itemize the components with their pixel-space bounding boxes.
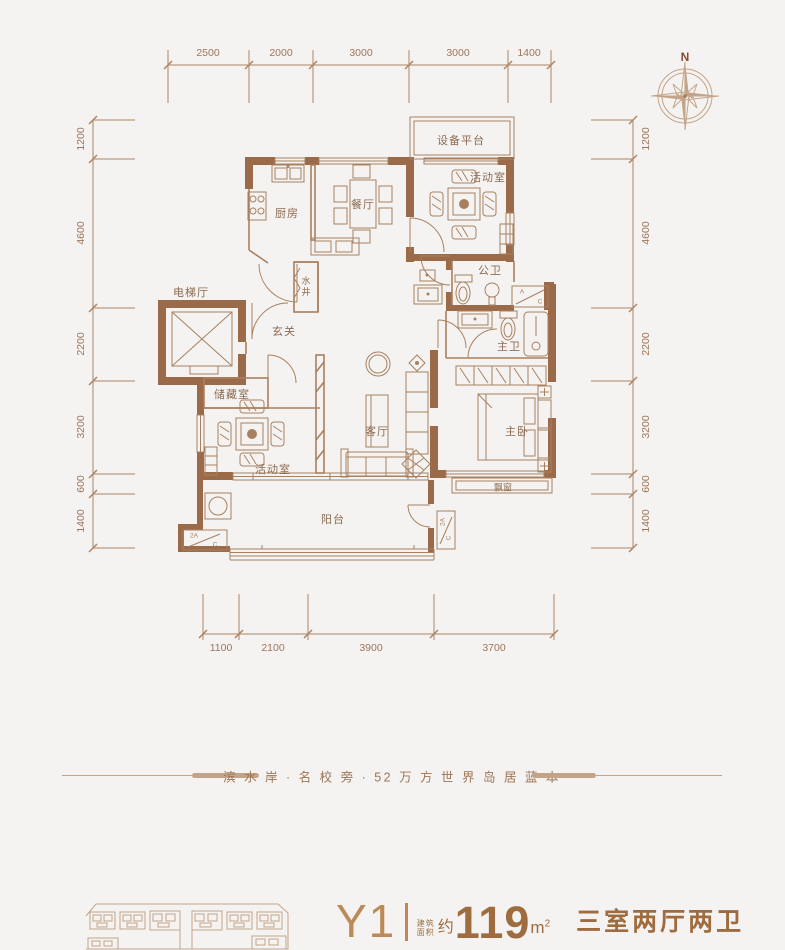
ac-label-balcony-2a: 2A	[440, 518, 447, 526]
area-label-line2: 面积	[417, 929, 435, 938]
dim-bottom-1: 1100	[210, 642, 233, 654]
dimension-lines-right	[591, 116, 637, 552]
compass-north-label: N	[681, 50, 690, 64]
dim-right-5: 600	[640, 475, 652, 493]
room-label-entry: 玄关	[272, 323, 296, 339]
tagline-line-left	[62, 775, 192, 776]
dim-bottom-3: 3900	[359, 642, 382, 654]
unit-model: Y1	[336, 899, 396, 943]
ac-label-right-c: C	[538, 299, 543, 306]
key-plan	[86, 904, 288, 949]
room-label-public-bath: 公卫	[478, 262, 502, 278]
dim-top-3: 3000	[349, 47, 372, 59]
area-unit-sup: 2	[545, 918, 551, 929]
furniture	[172, 165, 551, 519]
dim-left-1: 1200	[75, 127, 87, 150]
ac-label-bottomleft-c: C	[213, 542, 218, 549]
area-unit: m2	[530, 918, 550, 938]
room-label-kitchen: 厨房	[275, 205, 299, 221]
unit-title-block: Y1 建筑 面积 约 119 m2 三室两厅两卫	[336, 897, 744, 943]
dim-left-6: 1400	[75, 509, 87, 532]
room-label-dining: 餐厅	[351, 196, 375, 212]
dimension-lines-bottom	[199, 594, 558, 640]
area-value: 119	[455, 903, 531, 943]
floorplan-drawing	[0, 0, 785, 950]
tagline-bar-right	[532, 773, 596, 778]
unit-layout: 三室两厅两卫	[576, 902, 744, 938]
room-label-elevator-hall: 电梯厅	[173, 284, 209, 300]
dim-left-4: 3200	[75, 415, 87, 438]
ac-label-balcony-c: C	[446, 536, 453, 541]
room-label-activity-top: 活动室	[470, 169, 506, 185]
dim-top-5: 1400	[517, 47, 540, 59]
room-label-living: 客厅	[365, 423, 389, 439]
dim-top-4: 3000	[446, 47, 469, 59]
area-label-stack: 建筑 面积	[417, 920, 435, 937]
floorplan-page: 2500 2000 3000 3000 1400 1100 2100 3900 …	[0, 0, 785, 950]
room-label-equipment-platform: 设备平台	[437, 132, 485, 148]
room-label-bay-window: 飘窗	[494, 481, 512, 494]
tagline-line-right	[596, 775, 722, 776]
dim-right-2: 4600	[640, 221, 652, 244]
dimension-lines-left	[89, 116, 135, 552]
dim-bottom-2: 2100	[261, 642, 284, 654]
room-label-balcony: 阳台	[321, 511, 345, 527]
dim-right-1: 1200	[640, 127, 652, 150]
dim-left-2: 4600	[75, 221, 87, 244]
area-unit-base: m	[530, 918, 544, 937]
area-approx: 约	[438, 913, 454, 937]
dim-top-2: 2000	[269, 47, 292, 59]
dim-bottom-4: 3700	[482, 642, 505, 654]
dim-top-1: 2500	[196, 47, 219, 59]
compass-icon	[651, 62, 719, 130]
room-label-master-bath: 主卫	[497, 338, 521, 354]
room-label-storage: 储藏室	[214, 386, 250, 402]
tagline-row: 滨 水 岸 · 名 校 旁 · 52 万 方 世 界 岛 居 蓝 本	[0, 766, 785, 786]
room-label-water-shaft: 水井	[300, 276, 313, 298]
dim-right-3: 2200	[640, 332, 652, 355]
ac-label-right-a: A	[520, 289, 524, 296]
dim-left-5: 600	[75, 475, 87, 493]
dim-right-4: 3200	[640, 415, 652, 438]
dim-left-3: 2200	[75, 332, 87, 355]
room-label-master-bedroom: 主卧	[505, 423, 529, 439]
dim-right-6: 1400	[640, 509, 652, 532]
ac-label-bottomleft-2a: 2A	[190, 533, 198, 540]
title-divider	[405, 903, 408, 941]
balcony-railing	[230, 545, 434, 560]
tagline-text: 滨 水 岸 · 名 校 旁 · 52 万 方 世 界 岛 居 蓝 本	[223, 767, 561, 786]
room-label-activity-bottom: 活动室	[255, 461, 291, 477]
